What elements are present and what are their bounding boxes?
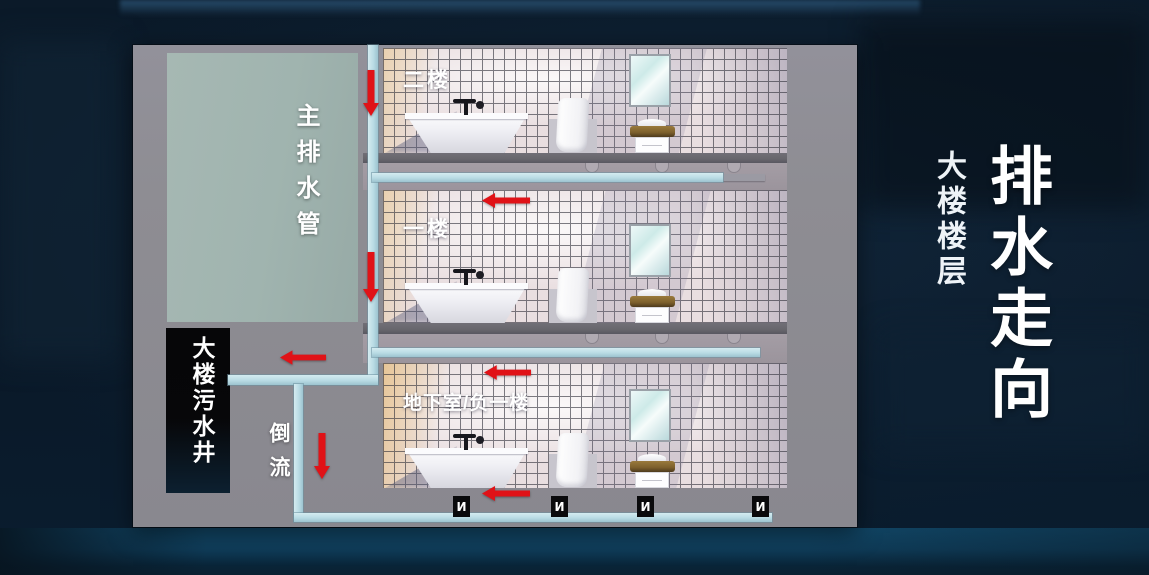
branch-pipe-wall-stub xyxy=(723,174,765,181)
drainage-infographic: 二楼 一楼 xyxy=(0,0,1149,575)
background-floor-band xyxy=(0,528,1149,575)
basement-label: 地下室/负一楼 xyxy=(403,388,529,415)
mirror xyxy=(629,224,671,277)
faucet-knob-icon xyxy=(476,271,484,279)
faucet-knob-icon xyxy=(476,436,484,444)
floor-slab xyxy=(363,323,787,334)
faucet-icon xyxy=(464,435,468,450)
drain-stub-icon xyxy=(585,334,599,344)
backflow-pipe xyxy=(294,384,303,521)
mirror xyxy=(629,389,671,442)
flow-arrow-left-icon xyxy=(484,365,531,380)
p-trap-icon: И xyxy=(551,496,568,517)
vanity-counter xyxy=(630,461,675,472)
toilet xyxy=(556,98,590,152)
faucet-knob-icon xyxy=(476,101,484,109)
drain-stub-icon xyxy=(727,334,741,344)
flow-arrow-down-icon xyxy=(314,433,330,479)
backflow-label: 倒流 xyxy=(263,422,293,490)
p-trap-icon: И xyxy=(752,496,769,517)
bathroom-basement: 地下室/负一楼 xyxy=(383,363,787,488)
drain-stub-icon xyxy=(727,163,741,173)
flow-arrow-down-icon xyxy=(363,252,379,302)
vanity-counter xyxy=(630,126,675,137)
drain-stub-icon xyxy=(585,163,599,173)
floor-2-label: 二楼 xyxy=(403,64,451,94)
faucet-icon xyxy=(464,100,468,115)
vanity-cabinet xyxy=(635,472,669,488)
bathroom-floor-2: 二楼 xyxy=(383,48,787,153)
basement-floor-pipe xyxy=(294,513,772,522)
floor1-branch-pipe xyxy=(372,173,723,182)
building-cross-section: 二楼 一楼 xyxy=(133,45,857,527)
basement-branch-pipe xyxy=(372,348,760,357)
flow-arrow-left-icon xyxy=(280,350,326,365)
p-trap-icon: И xyxy=(453,496,470,517)
floor-1-label: 一楼 xyxy=(403,213,451,243)
vanity-cabinet xyxy=(635,307,669,323)
bathroom-floor-1: 一楼 xyxy=(383,190,787,323)
background-glow xyxy=(120,0,920,16)
page-title: 排水走向 xyxy=(971,143,1062,427)
background-shape xyxy=(0,40,120,360)
vanity-counter xyxy=(630,296,675,307)
faucet-icon xyxy=(464,270,468,285)
toilet xyxy=(556,433,590,487)
drain-stub-icon xyxy=(655,334,669,344)
sewage-well-pipe xyxy=(228,375,378,385)
flow-arrow-left-icon xyxy=(482,193,530,208)
p-trap-icon: И xyxy=(637,496,654,517)
flow-arrow-down-icon xyxy=(363,70,379,116)
main-drain-duct-area xyxy=(167,53,358,322)
drain-stub-icon xyxy=(655,163,669,173)
vanity-cabinet xyxy=(635,137,669,153)
floor-slab xyxy=(363,153,787,163)
sewage-well-label: 大楼污水井 xyxy=(185,336,219,466)
building-floors-subtitle: 大楼楼层 xyxy=(926,150,970,290)
flow-arrow-left-icon xyxy=(482,486,530,501)
main-drain-pipe-label: 主排水管 xyxy=(288,103,323,247)
toilet xyxy=(556,268,590,322)
mirror xyxy=(629,54,671,107)
